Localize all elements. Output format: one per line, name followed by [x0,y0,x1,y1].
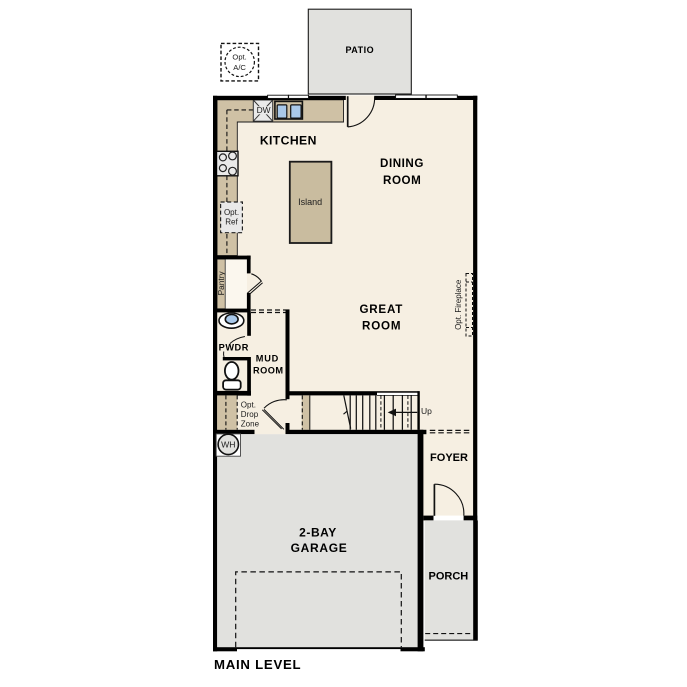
svg-text:MUD: MUD [256,353,279,363]
svg-text:MAIN LEVEL: MAIN LEVEL [214,657,301,672]
svg-text:Pantry: Pantry [216,271,226,296]
svg-text:A/C: A/C [233,63,246,72]
svg-text:2-BAY: 2-BAY [299,526,337,540]
svg-text:Drop: Drop [241,410,259,419]
svg-text:GARAGE: GARAGE [291,541,348,555]
svg-text:PORCH: PORCH [429,571,469,583]
svg-text:Ref: Ref [225,218,238,227]
svg-text:KITCHEN: KITCHEN [260,133,317,147]
svg-text:Opt.: Opt. [232,52,246,61]
svg-text:WH: WH [221,439,235,449]
svg-text:Island: Island [298,197,322,207]
svg-text:ROOM: ROOM [362,319,401,332]
svg-text:DW: DW [257,105,271,115]
svg-text:Opt.: Opt. [224,208,239,217]
svg-text:PATIO: PATIO [345,45,374,55]
svg-text:Opt.: Opt. [241,401,256,410]
svg-text:Zone: Zone [241,419,260,428]
svg-text:ROOM: ROOM [253,365,284,375]
svg-text:FOYER: FOYER [430,452,468,464]
svg-text:PWDR: PWDR [219,342,249,352]
svg-text:Opt. Fireplace: Opt. Fireplace [454,279,463,330]
svg-text:Up: Up [421,406,432,416]
svg-text:DINING: DINING [380,157,424,170]
svg-text:GREAT: GREAT [359,303,403,316]
svg-text:ROOM: ROOM [383,174,421,187]
